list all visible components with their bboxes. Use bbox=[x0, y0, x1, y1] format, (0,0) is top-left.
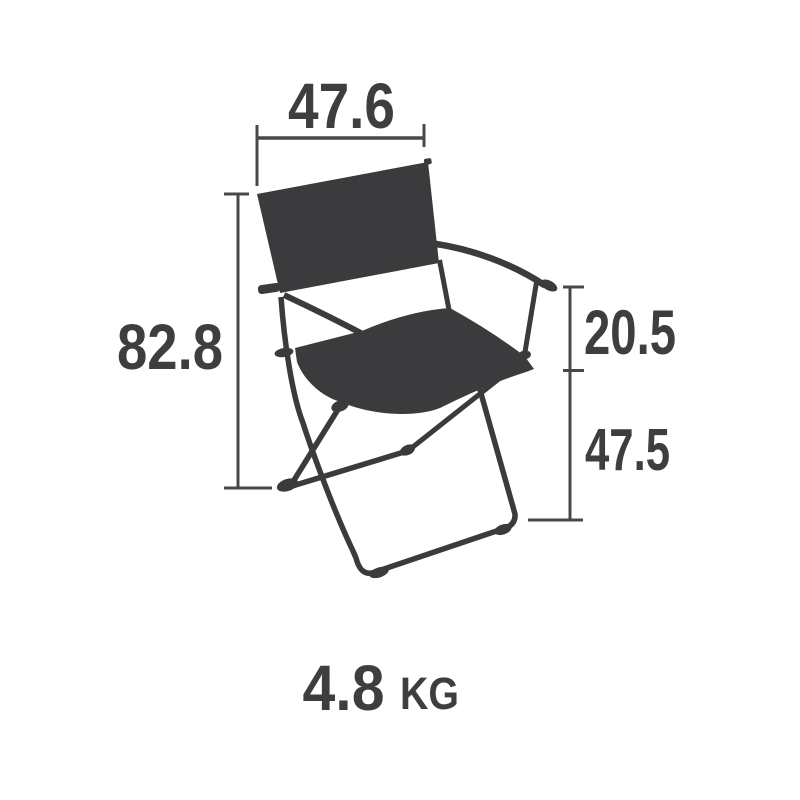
svg-text:20.5: 20.5 bbox=[584, 298, 676, 368]
svg-text:KG: KG bbox=[400, 668, 459, 719]
svg-text:47.6: 47.6 bbox=[288, 70, 395, 142]
svg-text:82.8: 82.8 bbox=[117, 311, 223, 383]
svg-text:47.5: 47.5 bbox=[585, 417, 670, 483]
svg-text:4.8: 4.8 bbox=[303, 652, 385, 724]
